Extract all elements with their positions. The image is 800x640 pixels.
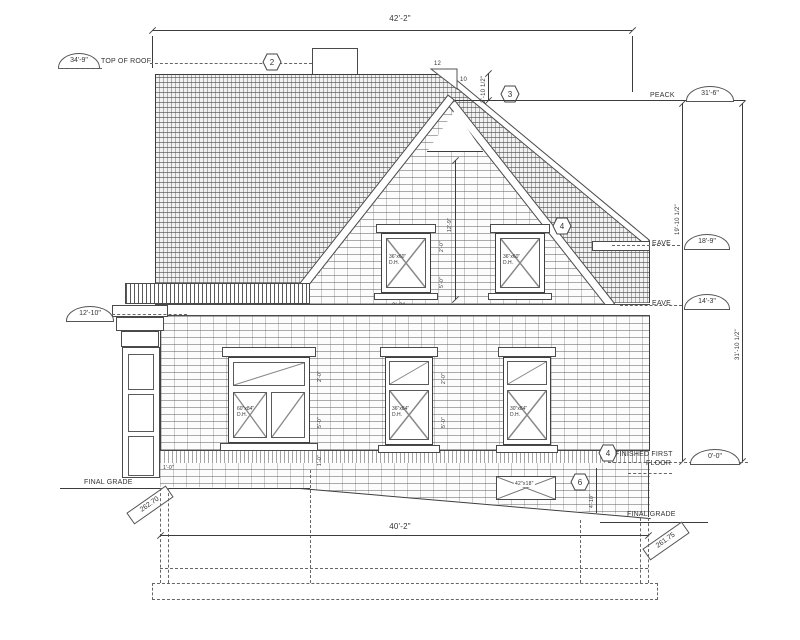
centerline <box>628 473 672 474</box>
eave-lower-elevation-bubble: 14'-3" <box>684 294 730 310</box>
dim-line-gable-height <box>455 160 456 300</box>
leader-line <box>112 314 187 315</box>
keynote-marker-3: 3 <box>500 84 520 104</box>
upper-left-window-label: 36"x60" D.H. <box>389 255 406 266</box>
window-head-trim <box>380 347 438 357</box>
window-sill <box>220 443 318 451</box>
main-left-window-label: 60"x84" D.H. <box>237 407 254 418</box>
dim-line-peak-offset <box>488 73 489 101</box>
dim-attic-height: 19'-10 1/2" <box>674 204 682 235</box>
foundation-wall-right <box>648 518 649 583</box>
dim-bay-base: 1'-0" <box>163 466 174 471</box>
dim-transom: 2'-0" <box>318 371 323 382</box>
window-sill <box>488 293 552 300</box>
dim-overall-height: 31'-10 1/2" <box>734 329 742 360</box>
keynote-marker-4a: 4 <box>552 216 572 236</box>
footing-top-line <box>160 568 648 569</box>
transom-glazing <box>507 361 547 385</box>
svg-text:4: 4 <box>560 222 565 231</box>
elevation-drawing: 42'-2" 34'-9" TOP OF ROOF 2 12 10 2'-10 … <box>0 0 800 640</box>
dim-line-attic-height <box>682 103 683 461</box>
svg-text:3: 3 <box>508 90 513 99</box>
freeze-board <box>155 304 650 316</box>
main-right-window-label: 30"x84" D.H. <box>510 407 527 418</box>
foundation-wall-right-inner <box>640 518 641 583</box>
window-type: D.H. <box>503 261 520 267</box>
foundation-line <box>310 470 311 583</box>
roof-slope-symbol <box>430 68 460 97</box>
eave-soffit <box>592 241 650 251</box>
chimney <box>312 48 358 76</box>
dim-tick <box>629 27 636 34</box>
slope-run: 10 <box>460 76 467 84</box>
bay-cornice-base <box>121 331 159 347</box>
main-center-window-label: 36"x84" D.H. <box>392 407 409 418</box>
dim-window: 5'-0" <box>318 417 323 428</box>
transom-glazing <box>389 361 429 385</box>
finished-first-floor-label-2: FLOOR <box>646 460 671 468</box>
final-grade-right-label: FINAL GRADE <box>627 511 676 519</box>
window-type: D.H. <box>237 413 254 419</box>
window-head-trim <box>376 224 436 233</box>
window-sill <box>378 445 440 453</box>
leader-line <box>150 63 312 64</box>
svg-text:2: 2 <box>270 58 275 67</box>
wall-right-edge <box>648 463 649 517</box>
roof-left-edge <box>155 75 156 283</box>
dim-overall-width: 42'-2" <box>370 15 430 23</box>
slope-rise: 12 <box>434 60 441 68</box>
transom-glazing <box>233 362 305 386</box>
bay-window-pane <box>128 354 154 390</box>
peak-label: PEACK <box>650 92 675 100</box>
grade-right-value-tag: 261.75 <box>642 522 689 561</box>
dim-transom: 2'-0" <box>442 373 447 384</box>
keynote-marker-2: 2 <box>262 52 282 72</box>
bay-cornice-mid <box>116 317 164 331</box>
dim-foundation-width: 40'-2" <box>370 523 430 531</box>
top-of-roof-line <box>155 74 451 75</box>
balcony-railing <box>125 283 310 304</box>
bay-window-pane <box>128 394 154 432</box>
finished-first-floor-label-1: FINISHED FIRST <box>615 451 673 459</box>
window-head-trim <box>490 224 550 233</box>
window-type: D.H. <box>389 261 406 267</box>
window-head-trim <box>498 347 556 357</box>
dim-transom: 2'-0" <box>440 241 445 252</box>
dim-ext-line <box>632 36 633 92</box>
keynote-marker-6: 6 <box>570 472 590 492</box>
vent-size-label: 42"x18" <box>514 482 535 487</box>
dim-gable-height: 12'-9" <box>448 218 453 232</box>
footing <box>152 583 658 600</box>
casement-glazing <box>271 392 305 438</box>
window-sill <box>496 445 558 453</box>
dim-window: 5'-0" <box>442 417 447 428</box>
top-of-roof-elevation-bubble: 34'-9" <box>58 53 100 69</box>
balcony-elevation-bubble: 12'-10" <box>66 306 114 322</box>
dim-sill: 1'-0" <box>318 455 323 466</box>
dim-peak-offset: 2'-10 1/2" <box>480 76 488 103</box>
dim-line-foundation-height <box>596 468 597 513</box>
leader-line <box>620 305 682 306</box>
window-type: D.H. <box>392 413 409 419</box>
window-sill <box>374 293 438 300</box>
svg-text:6: 6 <box>578 478 583 487</box>
upper-right-window-label: 36"x60" D.H. <box>503 255 520 266</box>
svg-text:4: 4 <box>606 449 611 458</box>
peak-elevation-bubble: 31'-6" <box>686 86 734 102</box>
final-grade-left-label: FINAL GRADE <box>84 479 133 487</box>
dim-foundation-height: 4'-10" <box>590 494 595 508</box>
top-of-roof-label: TOP OF ROOF <box>101 58 151 66</box>
window-head-trim <box>222 347 316 357</box>
eave-lower-label: EAVE <box>652 300 671 308</box>
dim-line-overall-height <box>742 103 743 461</box>
window-type: D.H. <box>510 413 527 419</box>
final-grade-left-line <box>60 488 310 489</box>
eave-upper-elevation-bubble: 18'-9" <box>684 234 730 250</box>
gable-vent-base-line <box>427 151 483 152</box>
grade-left-value-tag: 262.70 <box>126 486 173 525</box>
bay-cornice-top <box>112 305 168 317</box>
dim-line-foundation-width <box>160 535 648 536</box>
foundation-line <box>580 520 581 583</box>
eave-upper-label: EAVE <box>652 240 671 248</box>
dim-line-overall-width <box>152 30 632 31</box>
foundation-vent <box>496 476 556 500</box>
leader-line <box>58 68 102 69</box>
final-grade-right-line <box>600 522 708 523</box>
bay-lower-panel <box>128 436 154 476</box>
dim-window: 5'-0" <box>440 277 445 288</box>
ffl-elevation-bubble: 0'-0" <box>690 449 740 465</box>
